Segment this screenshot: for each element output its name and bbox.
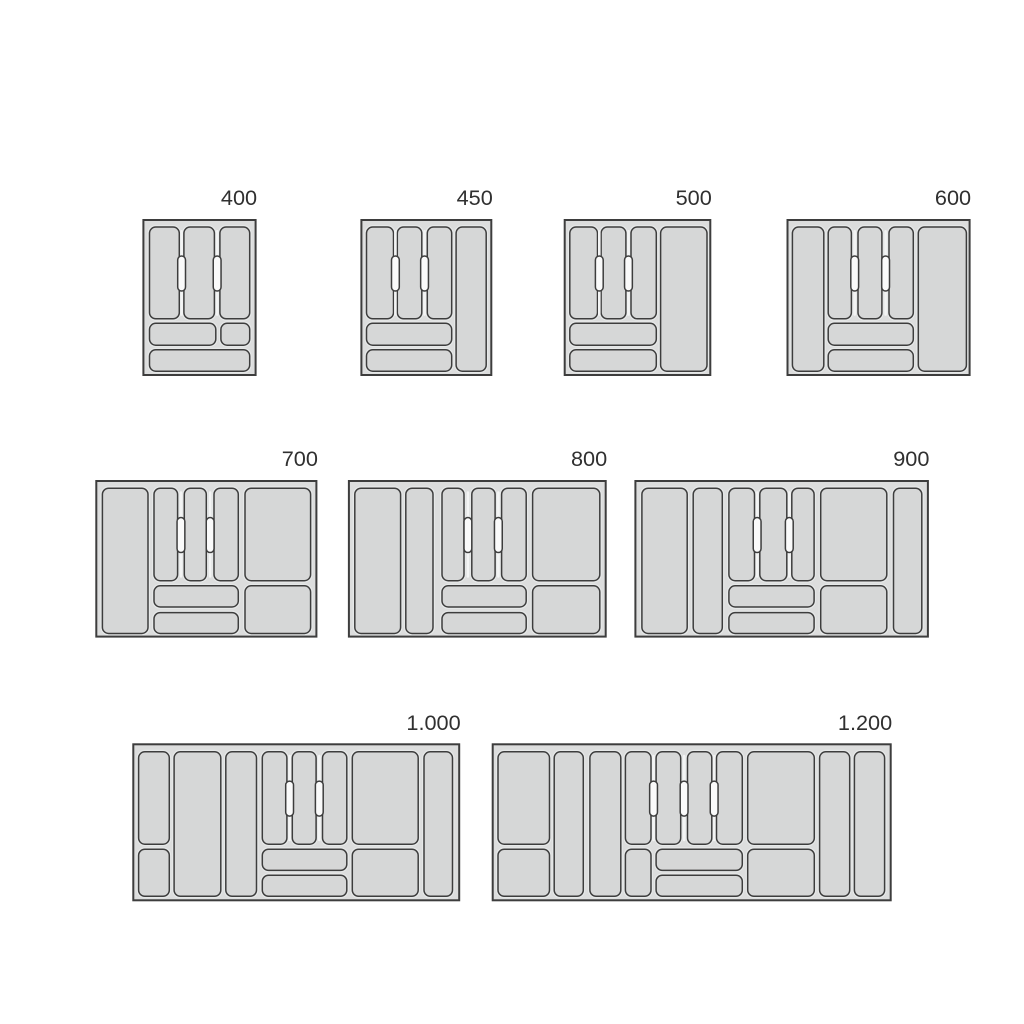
svg-text:1.200: 1.200: [838, 710, 892, 735]
svg-text:600: 600: [935, 185, 971, 210]
svg-text:800: 800: [571, 446, 607, 471]
svg-text:450: 450: [457, 185, 493, 210]
svg-text:500: 500: [676, 185, 712, 210]
svg-text:700: 700: [282, 446, 318, 471]
svg-text:400: 400: [221, 185, 257, 210]
svg-text:1.000: 1.000: [406, 710, 460, 735]
svg-text:900: 900: [893, 446, 929, 471]
